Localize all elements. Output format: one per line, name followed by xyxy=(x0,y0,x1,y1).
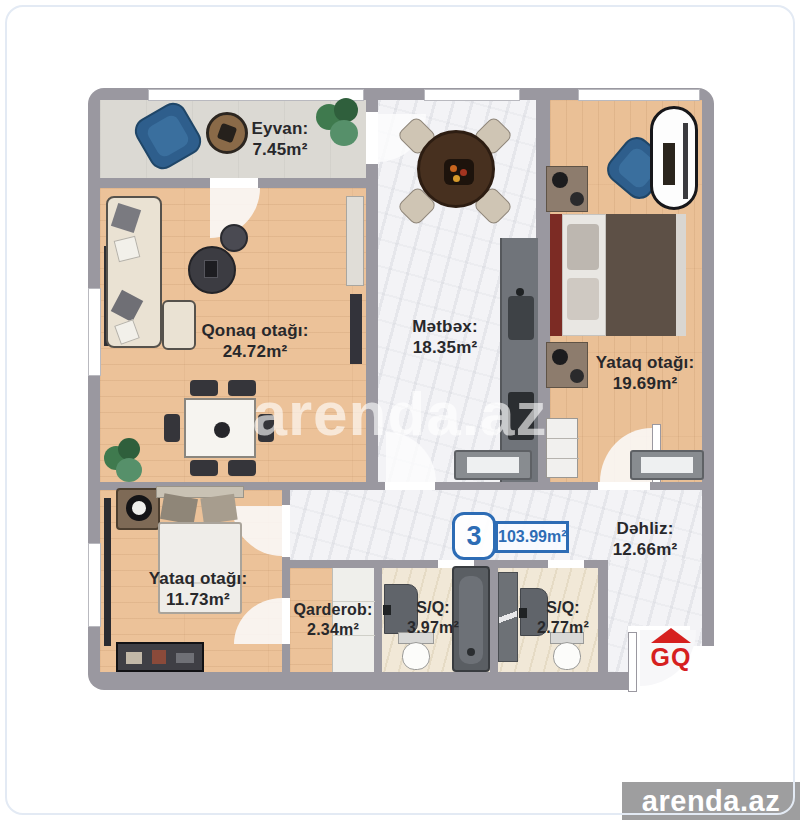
gq-roof-icon xyxy=(651,628,691,643)
tv-console xyxy=(630,450,704,480)
bed-pillow xyxy=(567,278,599,320)
console-item xyxy=(152,650,166,664)
double-bed xyxy=(550,214,686,336)
sofa-pillow xyxy=(111,203,141,233)
door-leaf-entrance xyxy=(628,632,637,692)
sofa-pillow xyxy=(111,290,143,322)
bed-pillow xyxy=(567,224,599,270)
window-bedroom2 xyxy=(88,543,101,627)
bed-headboard xyxy=(550,214,562,336)
drain xyxy=(467,648,475,656)
room-label-yataq2: Yataq otağı: 11.73m² xyxy=(135,568,261,610)
nightstand xyxy=(116,488,160,530)
kitchen-console-top xyxy=(467,457,519,473)
plant-leaf xyxy=(334,98,358,122)
toilet-bowl xyxy=(402,642,430,670)
room-name: S/Q: xyxy=(398,598,468,618)
room-name: Eyvan: xyxy=(228,118,332,139)
plant-leaf xyxy=(330,120,358,146)
door-gap-balcony-living xyxy=(210,178,258,188)
gq-builder-logo: GQ xyxy=(642,628,700,674)
window-kitchen xyxy=(424,89,520,101)
curtain-strip xyxy=(104,498,111,646)
toilet-bowl xyxy=(553,642,581,670)
room-label-eyvan: Eyvan: 7.45m² xyxy=(228,118,332,160)
watermark: arenda.az xyxy=(90,378,710,449)
room-name: Dəhliz: xyxy=(582,518,708,539)
room-label-metbex: Mətbəx: 18.35m² xyxy=(392,316,498,358)
coffee-table-decor xyxy=(204,260,218,278)
dining-chair xyxy=(228,460,256,476)
armchair-cushion xyxy=(145,113,191,159)
gq-logo-text: GQ xyxy=(642,643,700,671)
toilet xyxy=(398,632,434,672)
room-area: 18.35m² xyxy=(392,337,498,358)
kitchen-table-bowl xyxy=(444,159,474,185)
cabinet xyxy=(346,196,364,286)
window-living-room xyxy=(88,288,101,376)
room-area: 24.72m² xyxy=(190,341,320,362)
room-name: S/Q: xyxy=(528,598,598,618)
toilet xyxy=(550,632,584,672)
door-gap-bathroom2 xyxy=(548,560,584,568)
faucet xyxy=(519,608,527,618)
rooms-count-badge: 3 xyxy=(452,512,496,560)
coffee-table xyxy=(188,246,236,294)
wardrobe-rail xyxy=(683,123,688,199)
sofa-pillow xyxy=(114,236,141,263)
lamp xyxy=(552,349,568,365)
room-area: 2.77m² xyxy=(528,618,598,638)
room-name: Qarderob: xyxy=(286,600,380,620)
room-area: 7.45m² xyxy=(228,139,332,160)
shower-cabin xyxy=(498,572,518,662)
wardrobe xyxy=(650,106,698,210)
room-name: Mətbəx: xyxy=(392,316,498,337)
door-gap-kitchen-hall xyxy=(385,482,435,490)
room-area: 2.34m² xyxy=(286,620,380,640)
faucet xyxy=(383,605,391,615)
room-name: Yataq otağı: xyxy=(135,568,261,589)
sofa-pillow xyxy=(114,319,140,345)
wardrobe-shelf xyxy=(663,143,675,185)
kitchen-table xyxy=(417,130,495,208)
room-label-dehliz: Dəhliz: 12.66m² xyxy=(582,518,708,560)
bed-pillow xyxy=(160,493,198,525)
room-label-sq1: S/Q: 3.97m² xyxy=(398,598,468,638)
nightstand xyxy=(546,166,588,212)
lamp xyxy=(570,192,584,206)
floor-plan-image: Eyvan: 7.45m² Qonaq otağı: 24.72m² Mətbə… xyxy=(0,0,800,820)
tv-panel xyxy=(350,294,362,364)
room-name: Yataq otağı: xyxy=(582,352,708,373)
total-area-badge: 103.99m² xyxy=(495,521,569,553)
door-gap-balcony-kitchen xyxy=(366,112,378,164)
plant-leaf xyxy=(116,458,142,482)
room-label-sq2: S/Q: 2.77m² xyxy=(528,598,598,638)
media-console xyxy=(116,642,204,672)
room-area: 12.66m² xyxy=(582,539,708,560)
kitchen-console xyxy=(454,450,532,480)
dresser-line xyxy=(547,458,579,459)
fruit xyxy=(453,175,460,182)
room-area: 3.97m² xyxy=(398,618,468,638)
bed-blanket xyxy=(606,214,676,336)
kitchen-sink xyxy=(508,296,534,340)
room-label-qarderob: Qarderob: 2.34m² xyxy=(286,600,380,640)
tv-screen xyxy=(641,457,693,473)
fruit xyxy=(450,165,457,172)
lamp xyxy=(126,495,152,521)
console-item xyxy=(126,652,142,664)
door-gap-bedroom1-hall xyxy=(598,482,650,490)
faucet xyxy=(516,288,524,296)
door-gap-hall-bedroom2 xyxy=(282,505,290,557)
side-table-small xyxy=(220,224,248,252)
bed-pillow xyxy=(200,494,237,524)
bed-footboard xyxy=(676,214,686,336)
console-item xyxy=(176,653,194,663)
sofa xyxy=(106,196,162,348)
window-bedroom1 xyxy=(578,89,700,101)
dining-chair xyxy=(190,460,218,476)
lamp xyxy=(552,172,568,188)
room-area: 11.73m² xyxy=(135,589,261,610)
room-name: Qonaq otağı: xyxy=(190,320,320,341)
fruit xyxy=(460,169,467,176)
room-label-qonaq: Qonaq otağı: 24.72m² xyxy=(190,320,320,362)
footer-brand-badge: arenda.az xyxy=(622,782,800,820)
